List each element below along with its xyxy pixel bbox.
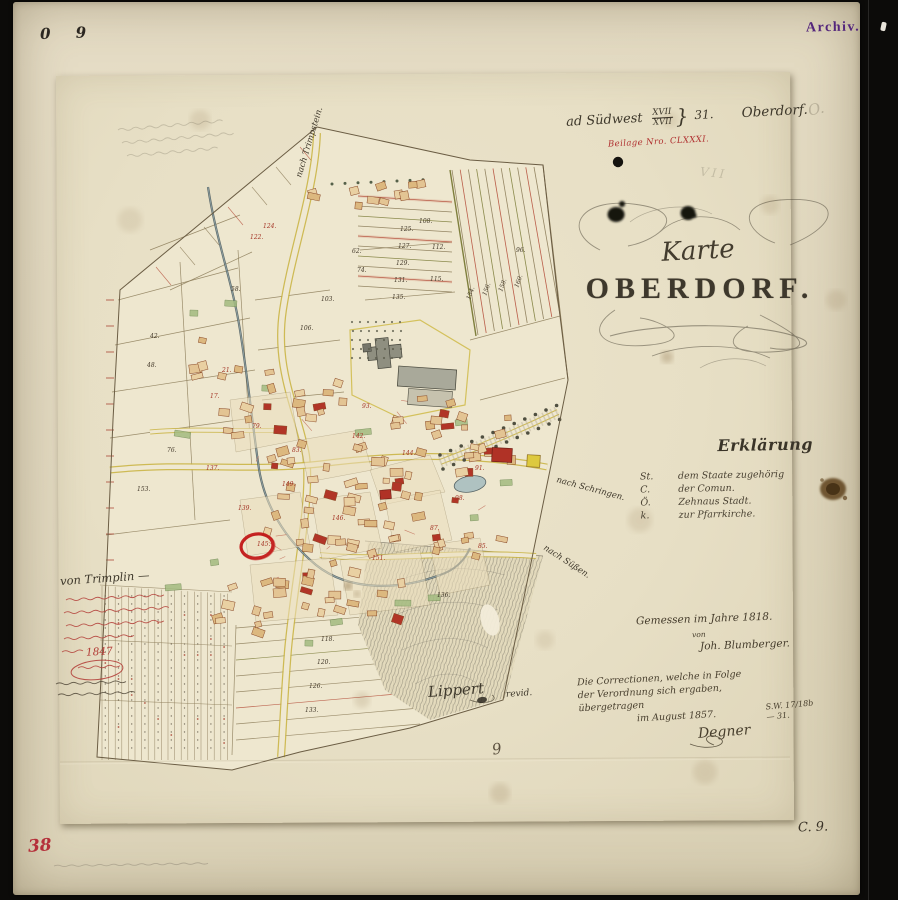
legend-key: C. [640,483,668,496]
parcel-number: 129. [396,260,409,267]
legend-row: k. zur Pfarrkirche. [641,507,785,523]
parcel-number: 96. [516,247,526,254]
parcel-number: 135. [392,294,405,301]
correction-note: Die Correctionen, welche in Folge der Ve… [577,668,744,729]
parcel-number: 112. [432,244,445,251]
parcel-number: 62. [352,248,362,255]
parcel-number: 118. [321,636,334,643]
red-inventory-number: 38 [27,835,52,857]
road-label: nach Süßen. [541,543,591,581]
parcel-number: 21. [221,367,232,374]
parcel-number: 146. [332,515,345,522]
parcel-number: 103. [321,296,334,303]
parcel-number: 87. [430,525,440,532]
parcel-number: 106. [300,325,313,332]
corner-number: 0 9 [40,23,97,43]
parcel-number: 93. [362,403,372,410]
legend-key: St. [640,470,668,483]
parcel-number: 108. [419,218,432,225]
parcel-number: 115. [430,276,443,283]
parcel-number: 125. [400,226,413,233]
parcel-number: 142. [352,433,365,440]
legend: Erklärung St. dem Staate zugehörig C. de… [639,434,814,522]
parcel-number: 48. [146,362,157,369]
parcel-number: 131. [394,277,407,284]
parcel-number: 122. [250,234,263,241]
header-prefix: ad Südwest [566,111,643,130]
parcel-number: 139. [238,505,251,512]
bottom-right-mark: C. 9. [798,819,829,835]
parcel-number: 17. [210,393,220,400]
parcel-number: 85. [478,543,488,550]
legend-key: Ö. [640,496,668,509]
header-number: 31. [694,107,714,122]
pencil-mark-vii: VII [699,165,727,182]
parcel-number: 153. [137,486,150,493]
parcel-number: 76. [167,447,177,454]
brown-ink-blot [820,478,847,500]
parcel-number: 91. [475,465,485,472]
revision-note: revid. [506,688,533,700]
archival-map-scan: nach Trimpstein.nach Schringen.nach Süße… [0,0,898,900]
parcel-number: 83. [292,447,302,454]
parcel-number: 124. [263,223,276,230]
parcel-number: 151. [372,555,385,562]
road-label: nach Schringen. [555,475,626,503]
parcel-number: 133. [305,707,318,714]
map-title: OBERDORF. [580,272,820,306]
header-place: Oberdorf. [741,101,808,120]
ink-blots [608,157,697,222]
margin-note-year: 1847 [86,645,113,658]
parcel-number: 98. [455,495,465,502]
legend-label: zur Pfarrkirche. [669,507,785,522]
parcel-number: 144. [402,450,415,457]
parcel-number: 79. [252,423,262,430]
parcel-number: 127. [398,243,411,250]
archiv-stamp: Archiv. [806,20,860,37]
parcel-number: 74. [357,267,367,274]
brace: } [675,104,689,129]
parcel-number: 120. [317,659,330,666]
parcel-number: 126. [309,683,322,690]
parcel-number: 42. [149,333,160,340]
parcel-number: 136. [437,592,450,599]
legend-heading: Erklärung [717,434,813,455]
pencil-mark-o: O. [806,99,826,120]
fraction-bottom: XVII [652,117,673,127]
parcel-number: 149. [282,481,295,488]
parcel-number: 145. [257,541,270,548]
survey-note-von: von [692,630,706,639]
parcel-number: 137. [206,465,219,472]
legend-key: k. [641,509,669,522]
parcel-number: 58. [231,286,241,293]
